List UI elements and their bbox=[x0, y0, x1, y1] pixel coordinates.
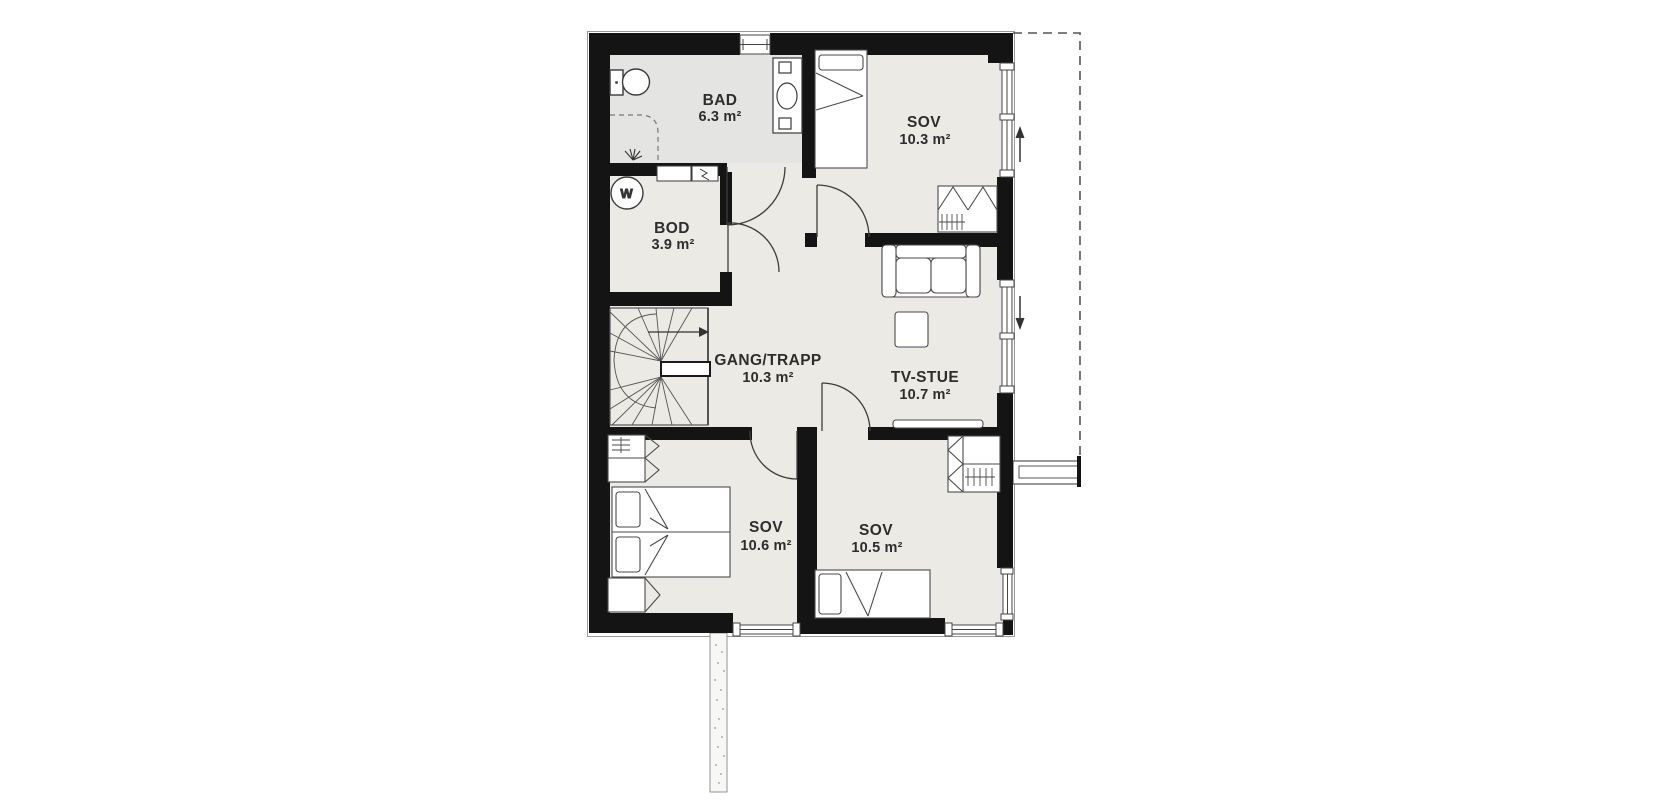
window-icon-top bbox=[740, 35, 770, 54]
wall-exterior-bottom-mid bbox=[800, 618, 945, 634]
wall-exterior-left bbox=[589, 33, 610, 633]
window-icon-bottom-2 bbox=[945, 623, 1003, 636]
balcony-bench-icon bbox=[1013, 461, 1078, 484]
direction-arrow-icon-down bbox=[1016, 296, 1025, 330]
balcony-outline bbox=[1013, 33, 1081, 487]
room-label-bad-area: 6.3 m² bbox=[698, 109, 741, 125]
floor-plan-drawing: W bbox=[0, 0, 1670, 800]
fuse-box-icon bbox=[692, 166, 718, 181]
floor-plan-canvas: W bbox=[0, 0, 1670, 800]
wall-sov2-sov3 bbox=[797, 427, 817, 633]
wall-bod-right-upper bbox=[720, 172, 732, 225]
washing-machine-icon: W bbox=[611, 177, 643, 209]
room-label-gang-area: 10.3 m² bbox=[742, 370, 793, 386]
room-label-sov1-name: SOV bbox=[907, 114, 941, 131]
room-label-sov1-area: 10.3 m² bbox=[899, 132, 950, 148]
wall-exterior-right-mid bbox=[997, 177, 1013, 280]
wall-sov1-stub bbox=[805, 233, 817, 247]
room-label-sov2-name: SOV bbox=[749, 519, 783, 536]
double-bed-icon-sov2 bbox=[612, 487, 730, 577]
balcony-dashed-line bbox=[1013, 33, 1080, 457]
window-icon-right-3 bbox=[1001, 568, 1013, 620]
room-label-sov3-name: SOV bbox=[859, 522, 893, 539]
toilet-icon bbox=[610, 69, 650, 95]
wall-corner-topright bbox=[988, 33, 1013, 63]
room-label-sov2-area: 10.6 m² bbox=[740, 538, 791, 554]
sink-vanity-icon bbox=[773, 58, 802, 133]
bed-icon-sov3 bbox=[815, 570, 930, 618]
window-icon-bottom-1 bbox=[733, 623, 800, 636]
room-label-bod-name: BOD bbox=[654, 220, 690, 237]
wall-bod-bottom bbox=[589, 292, 722, 306]
window-icon-right-1 bbox=[1000, 63, 1014, 177]
wardrobe-icon-sov1 bbox=[938, 186, 997, 232]
window-icon-right-2 bbox=[1000, 280, 1014, 393]
ottoman-icon bbox=[895, 312, 928, 347]
room-label-gang-name: GANG/TRAPP bbox=[714, 352, 821, 369]
bed-icon-sov1 bbox=[815, 50, 867, 168]
wall-exterior-bottom-left bbox=[589, 613, 733, 633]
vent-icon bbox=[657, 166, 691, 181]
room-label-bod-area: 3.9 m² bbox=[651, 237, 694, 253]
tv-icon bbox=[893, 420, 983, 428]
washing-machine-label: W bbox=[620, 186, 633, 201]
room-label-tvstue-name: TV-STUE bbox=[891, 369, 959, 386]
stair-landing-rail bbox=[661, 362, 710, 376]
wall-exterior-top-left bbox=[589, 33, 740, 55]
foundation-strip bbox=[710, 633, 727, 792]
room-label-bad-name: BAD bbox=[703, 92, 738, 109]
wall-corner-bottomright bbox=[1003, 620, 1013, 635]
wall-bad-sov bbox=[802, 33, 816, 178]
room-label-tvstue-area: 10.7 m² bbox=[899, 387, 950, 403]
sofa-icon bbox=[882, 245, 980, 297]
room-label-sov3-area: 10.5 m² bbox=[851, 540, 902, 556]
direction-arrow-icon-up bbox=[1016, 126, 1025, 162]
balcony-wall-tick bbox=[1077, 456, 1081, 487]
wardrobe-icon-sov3 bbox=[948, 436, 1000, 492]
